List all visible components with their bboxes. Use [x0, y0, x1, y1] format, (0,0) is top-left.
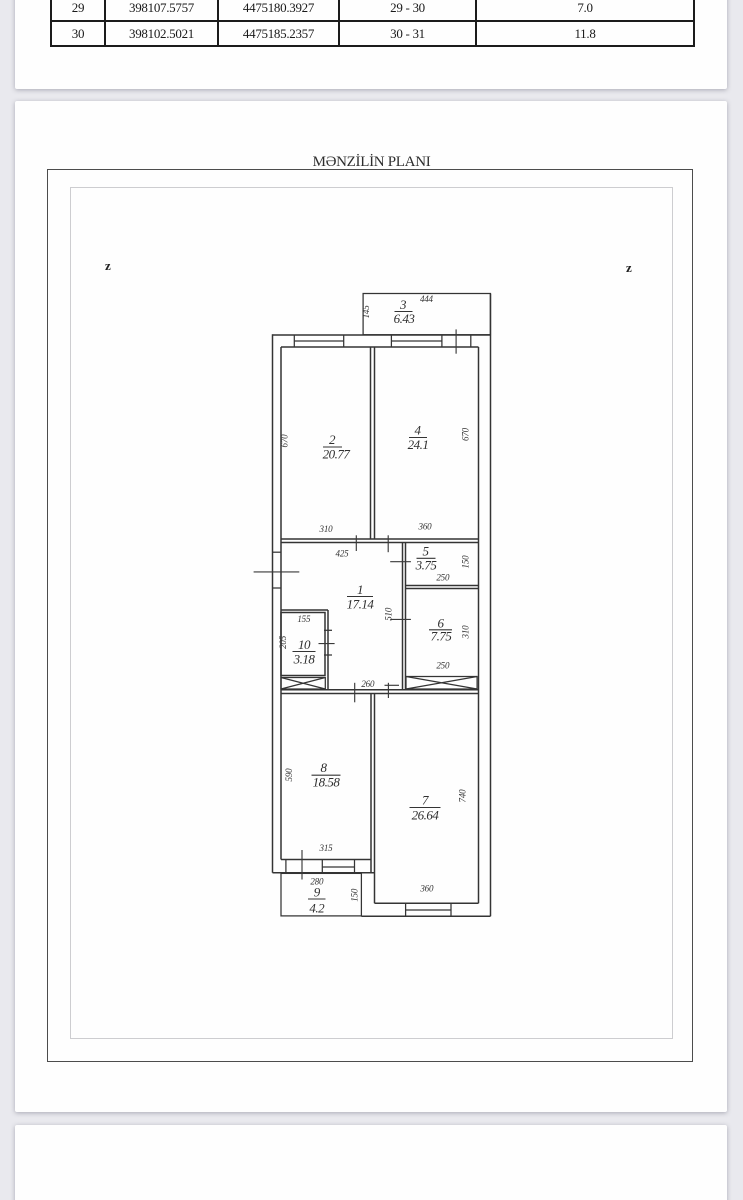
svg-text:150: 150 [349, 888, 359, 902]
svg-text:740: 740 [458, 789, 468, 803]
svg-text:18.58: 18.58 [313, 775, 341, 790]
svg-text:310: 310 [461, 625, 471, 640]
svg-text:3: 3 [399, 297, 407, 312]
svg-text:360: 360 [418, 522, 433, 532]
svg-text:250: 250 [436, 660, 450, 670]
svg-text:4: 4 [415, 423, 422, 438]
svg-text:310: 310 [319, 524, 334, 534]
svg-text:7: 7 [422, 793, 429, 808]
svg-text:425: 425 [336, 549, 350, 559]
svg-text:250: 250 [436, 573, 450, 583]
svg-text:360: 360 [419, 884, 434, 894]
svg-text:590: 590 [284, 768, 294, 782]
svg-text:315: 315 [319, 843, 334, 853]
svg-text:510: 510 [384, 607, 394, 621]
svg-text:4.2: 4.2 [309, 901, 325, 916]
svg-text:24.1: 24.1 [408, 437, 429, 452]
svg-text:150: 150 [461, 555, 471, 569]
svg-text:145: 145 [361, 305, 371, 319]
svg-text:670: 670 [461, 427, 471, 441]
svg-text:17.14: 17.14 [347, 597, 375, 612]
svg-text:2: 2 [329, 432, 336, 447]
svg-text:670: 670 [280, 434, 290, 448]
svg-text:3.18: 3.18 [293, 652, 316, 667]
svg-text:20.77: 20.77 [323, 447, 351, 462]
svg-text:205: 205 [278, 635, 288, 649]
svg-text:260: 260 [361, 679, 375, 689]
svg-text:3.75: 3.75 [415, 558, 438, 573]
svg-text:8: 8 [321, 760, 328, 775]
svg-text:155: 155 [297, 614, 311, 624]
svg-text:26.64: 26.64 [412, 808, 440, 823]
svg-text:444: 444 [420, 294, 434, 304]
svg-text:10: 10 [298, 637, 311, 652]
svg-text:1: 1 [357, 582, 363, 597]
svg-text:5: 5 [423, 544, 430, 559]
svg-text:6.43: 6.43 [394, 311, 416, 326]
svg-text:280: 280 [310, 877, 324, 887]
svg-text:9: 9 [314, 885, 321, 900]
svg-text:7.75: 7.75 [431, 628, 453, 643]
